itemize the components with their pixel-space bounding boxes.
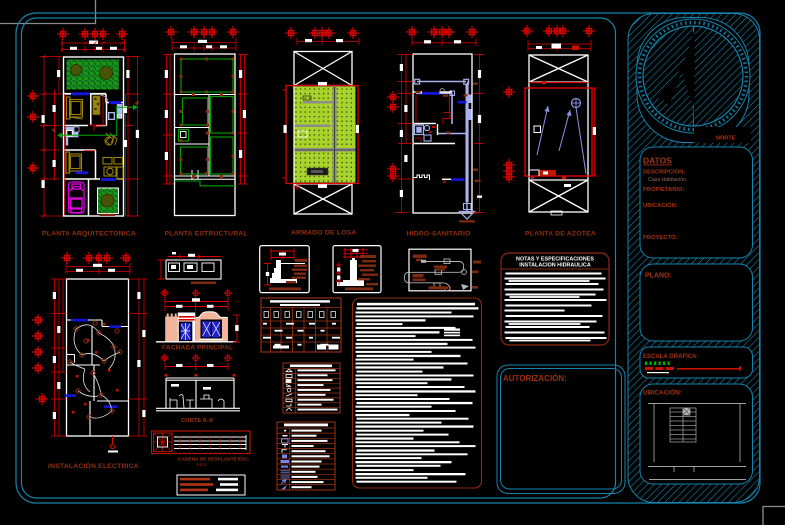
svg-text:INSTALACION HIDRAULICA: INSTALACION HIDRAULICA [519,263,591,269]
svg-text:DATOS: DATOS [643,156,672,166]
svg-text:UBICACIÓN:: UBICACIÓN: [643,201,678,209]
svg-text:CADENA DE DESPLANTE ESC:: CADENA DE DESPLANTE ESC: [178,457,250,463]
svg-text:S/ESC: S/ESC [196,463,208,467]
svg-text:Casa Habitación.: Casa Habitación. [648,177,688,183]
svg-text:PROPIETARIO:: PROPIETARIO: [643,187,685,193]
svg-text:CORTE A-A': CORTE A-A' [181,418,215,424]
svg-text:PLANO:: PLANO: [645,273,672,280]
svg-text:PLANTA DE AZOTEA: PLANTA DE AZOTEA [525,231,596,238]
svg-text:PROYECTÓ:: PROYECTÓ: [643,233,678,241]
svg-text:HIDRO-SANITARIO: HIDRO-SANITARIO [407,231,471,238]
svg-text:PLANTA ESTRUCTURAL: PLANTA ESTRUCTURAL [165,231,248,238]
svg-text:ARMADO DE LOSA: ARMADO DE LOSA [291,230,356,237]
svg-text:NORTE: NORTE [716,136,736,142]
svg-text:AUTORIZACIÓN:: AUTORIZACIÓN: [503,374,567,383]
svg-text:DESCRIPCIÓN:: DESCRIPCIÓN: [643,168,685,176]
svg-text:UBICACIÓN:: UBICACIÓN: [643,388,682,397]
svg-text:ESCALA GRAFICA:: ESCALA GRAFICA: [643,354,698,360]
svg-text:PLANTA ARQUITECTONICA: PLANTA ARQUITECTONICA [42,231,136,238]
svg-text:FACHADA PRINCIPAL: FACHADA PRINCIPAL [162,345,233,352]
svg-text:INSTALACIÓN ELECTRICA: INSTALACIÓN ELECTRICA [48,461,139,470]
